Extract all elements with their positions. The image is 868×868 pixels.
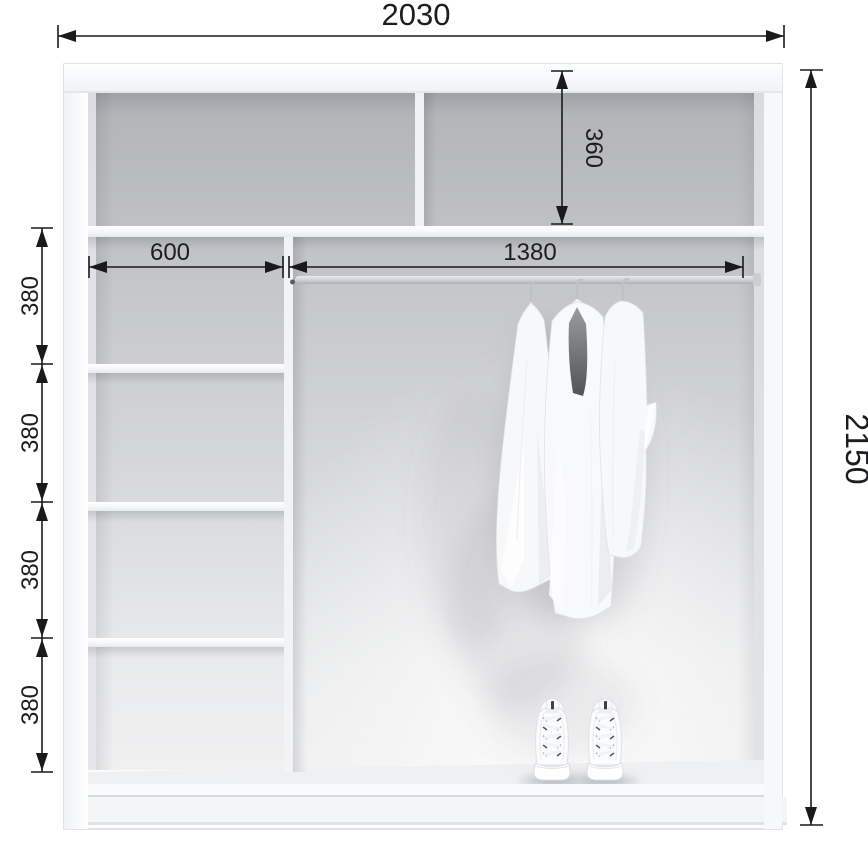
floor-front-edge	[88, 784, 764, 795]
top-partition	[415, 93, 424, 226]
dim-label-total-width: 2030	[382, 0, 451, 32]
wardrobe	[64, 64, 787, 829]
dim-label-shelf-spacing-1: 380	[17, 276, 44, 316]
top-panel	[64, 64, 782, 93]
dim-label-shelf-spacing-3: 380	[17, 550, 44, 590]
left-divider	[284, 237, 293, 772]
plinth-bottom-shadow	[79, 822, 787, 825]
dim-label-shelf-spacing-4: 380	[17, 685, 44, 725]
diagram-stage: 2030 2150 360 600	[0, 0, 868, 868]
left-shelf-1	[88, 364, 284, 373]
left-wall-inner-face	[88, 93, 96, 770]
left-side-panel	[64, 64, 88, 829]
rod-bracket	[753, 273, 761, 286]
sneaker-left	[534, 699, 570, 780]
left-shelf-3-shadow	[88, 647, 284, 658]
left-shelf-2-shadow	[88, 511, 284, 522]
wardrobe-dimension-diagram: 2030 2150 360 600	[0, 0, 868, 868]
dim-label-top-section-height: 360	[580, 128, 607, 168]
top-shelf	[88, 226, 764, 237]
right-side-panel	[764, 64, 782, 829]
base	[79, 784, 787, 825]
dim-label-shelf-spacing-2: 380	[17, 413, 44, 453]
dim-shelf-spacings: 380 380 380 380	[17, 228, 53, 772]
right-wall-inner-face	[754, 93, 764, 770]
dim-total-height: 2150	[800, 70, 868, 825]
rod-end-pin	[290, 280, 295, 285]
left-shelf-2	[88, 502, 284, 511]
top-partition-shadow	[424, 93, 436, 226]
dim-label-hanging-rod-width: 1380	[503, 239, 556, 266]
plinth-groove	[88, 795, 764, 797]
top-panel-edge	[64, 91, 782, 93]
dim-label-left-column-width: 600	[150, 239, 190, 266]
sneaker-right	[587, 699, 623, 780]
dim-label-total-height: 2150	[839, 413, 868, 484]
dim-total-width: 2030	[58, 0, 784, 48]
left-divider-shadow	[293, 237, 307, 772]
sneaker-logo-mark	[551, 701, 554, 710]
left-shelf-3	[88, 638, 284, 647]
left-shelf-1-shadow	[88, 373, 284, 384]
plinth	[79, 797, 787, 824]
